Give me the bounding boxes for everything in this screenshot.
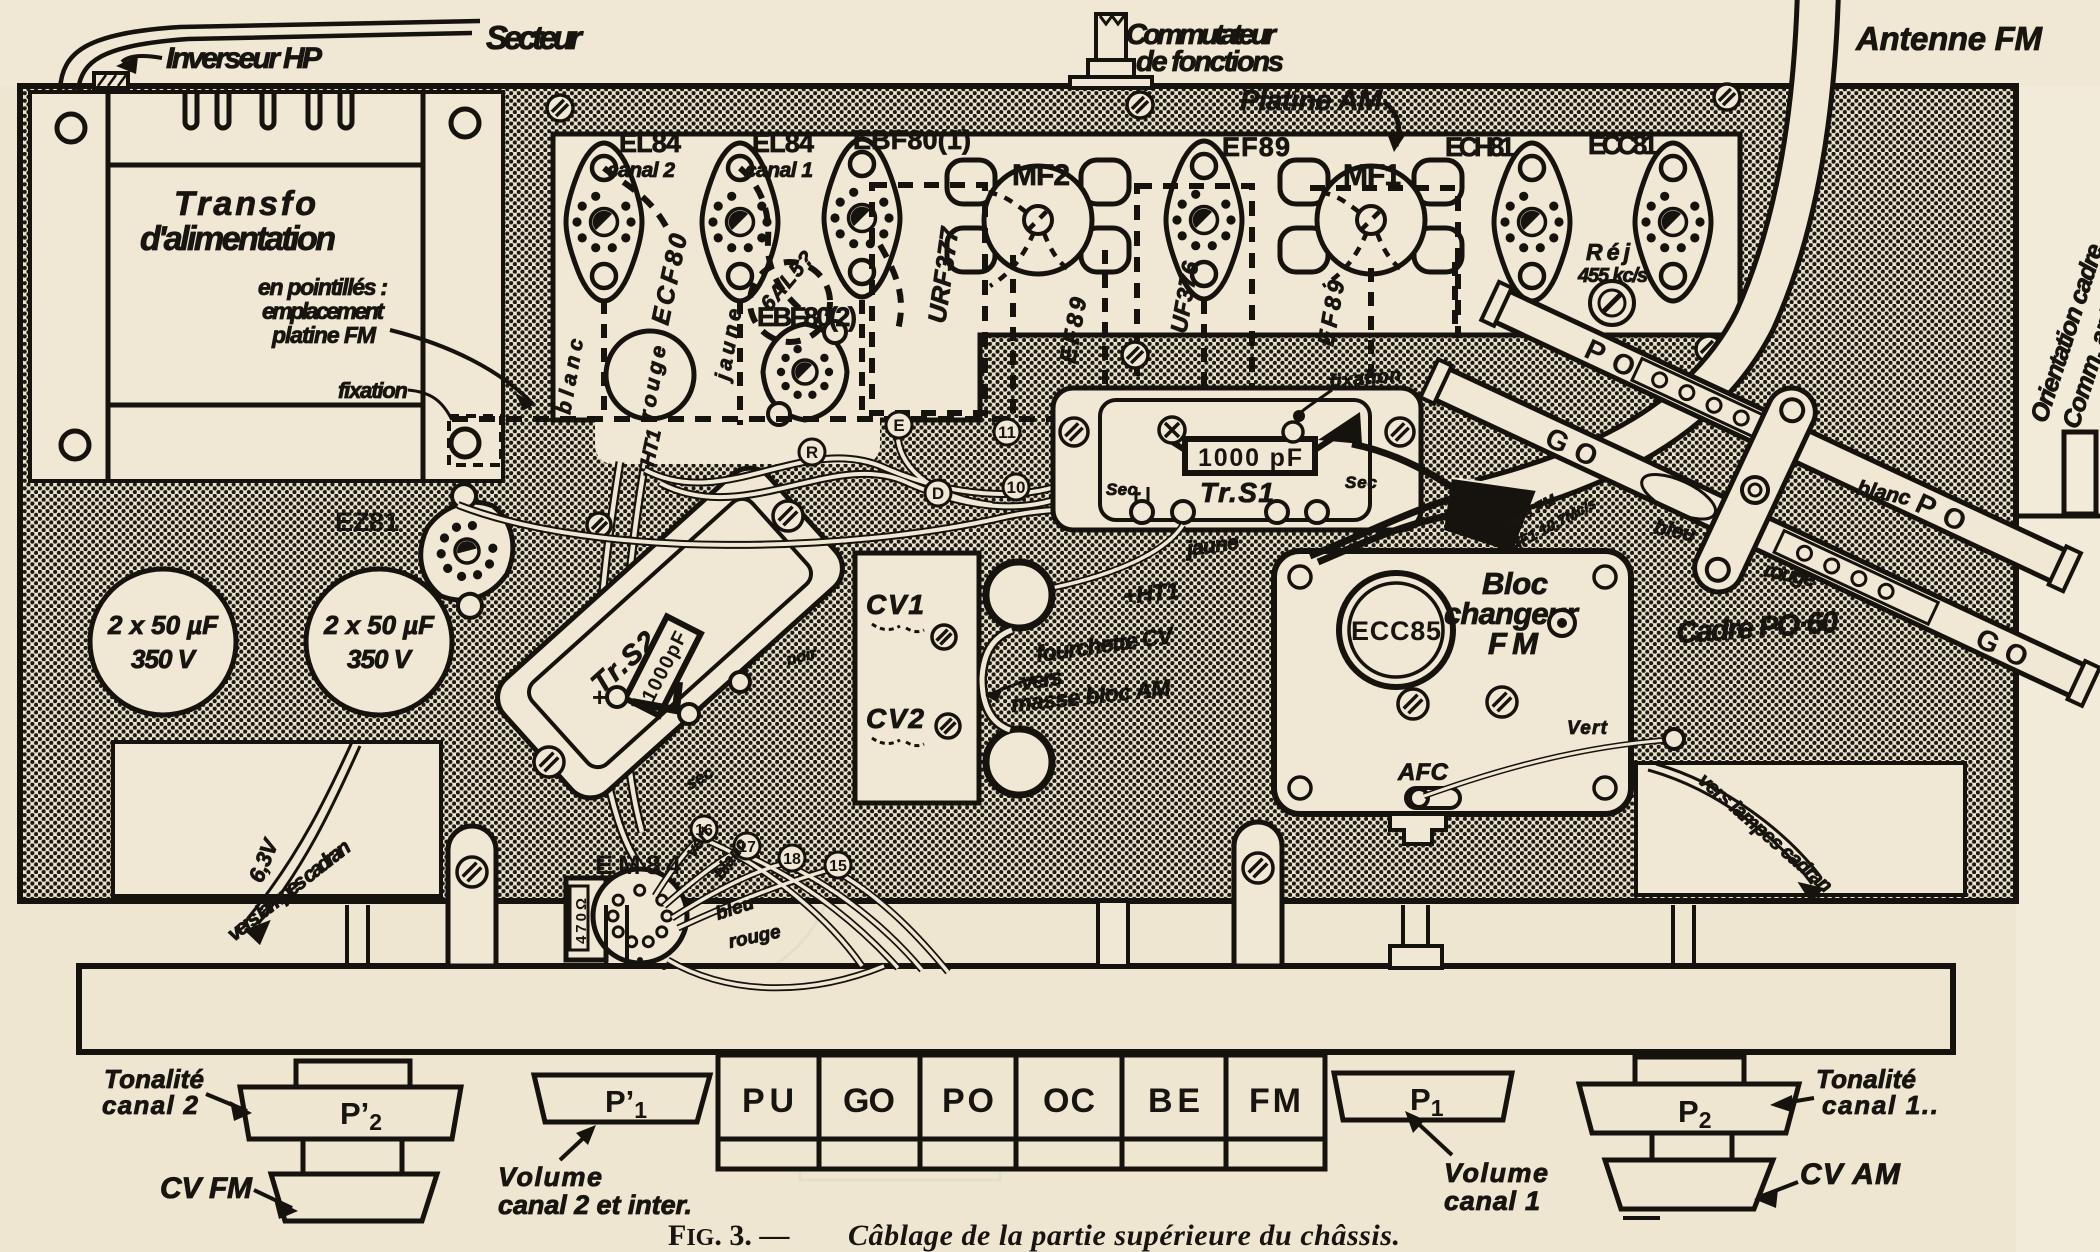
svg-text:10: 10 xyxy=(1007,478,1026,497)
svg-text:15: 15 xyxy=(829,858,847,875)
svg-text:ECH81: ECH81 xyxy=(1445,132,1515,162)
svg-text:canal 2: canal 2 xyxy=(607,159,675,182)
svg-text:Réj: Réj xyxy=(1586,239,1631,265)
svg-text:11: 11 xyxy=(998,423,1016,442)
svg-text:1000 pF: 1000 pF xyxy=(1198,444,1302,472)
svg-text:de fonctions: de fonctions xyxy=(1136,46,1284,78)
svg-text:Antenne FM: Antenne FM xyxy=(1855,20,2044,57)
svg-text:D: D xyxy=(932,484,944,503)
svg-text:Vert: Vert xyxy=(1567,718,1608,739)
svg-text:canal 1: canal 1 xyxy=(1444,1186,1540,1216)
svg-text:MF1: MF1 xyxy=(1343,159,1401,192)
svg-text:PO: PO xyxy=(942,1082,994,1120)
svg-text:CV AM: CV AM xyxy=(1800,1158,1901,1191)
svg-text:FM: FM xyxy=(1488,626,1539,661)
svg-text:GO: GO xyxy=(843,1082,895,1120)
svg-text:emplacement: emplacement xyxy=(262,298,385,324)
svg-text:EF89: EF89 xyxy=(1222,132,1290,162)
svg-text:OC: OC xyxy=(1043,1082,1095,1120)
svg-text:Volume: Volume xyxy=(1444,1158,1548,1188)
svg-text:ECC81: ECC81 xyxy=(1588,130,1658,160)
svg-text:canal 1: canal 1 xyxy=(745,159,813,182)
svg-text:2 x 50 µF: 2 x 50 µF xyxy=(323,610,435,640)
svg-text:Volume: Volume xyxy=(498,1162,602,1192)
svg-text:platine FM: platine FM xyxy=(271,322,377,348)
svg-text:fixation: fixation xyxy=(338,378,408,403)
svg-text:Platine AM: Platine AM xyxy=(1240,85,1383,117)
svg-text:350 V: 350 V xyxy=(347,644,414,674)
svg-text:EL84: EL84 xyxy=(752,128,814,158)
svg-text:Inverseur HP: Inverseur HP xyxy=(166,42,323,75)
svg-text:ECC85: ECC85 xyxy=(1351,616,1441,646)
svg-text:EL84: EL84 xyxy=(619,128,681,158)
svg-text:350 V: 350 V xyxy=(131,644,198,674)
svg-text:FM: FM xyxy=(1249,1082,1301,1120)
svg-text:18: 18 xyxy=(783,851,801,868)
svg-text:MF2: MF2 xyxy=(1012,159,1070,192)
svg-text:Sec: Sec xyxy=(1345,473,1378,492)
svg-text:EZ81: EZ81 xyxy=(335,507,399,537)
svg-text:Câblage de la partie supérieur: Câblage de la partie supérieure du châss… xyxy=(848,1219,1400,1252)
svg-text:EM84: EM84 xyxy=(595,850,681,880)
svg-text:E: E xyxy=(893,416,904,435)
svg-text:R: R xyxy=(806,443,818,462)
svg-text:d'alimentation: d'alimentation xyxy=(140,220,336,258)
svg-text:CV2: CV2 xyxy=(866,703,924,734)
svg-text:CV FM: CV FM xyxy=(160,1172,253,1205)
svg-text:CV1: CV1 xyxy=(866,589,924,620)
svg-text:en pointillés :: en pointillés : xyxy=(258,274,388,300)
svg-text:470Ω: 470Ω xyxy=(573,898,590,944)
svg-text:+: + xyxy=(592,682,607,712)
svg-text:2 x 50 µF: 2 x 50 µF xyxy=(107,610,219,640)
svg-text:Secteur: Secteur xyxy=(486,19,584,56)
svg-text:EBF80(1): EBF80(1) xyxy=(853,125,971,155)
svg-text:canal 2 et inter.: canal 2 et inter. xyxy=(498,1190,692,1220)
svg-text:AFC: AFC xyxy=(1397,759,1449,786)
